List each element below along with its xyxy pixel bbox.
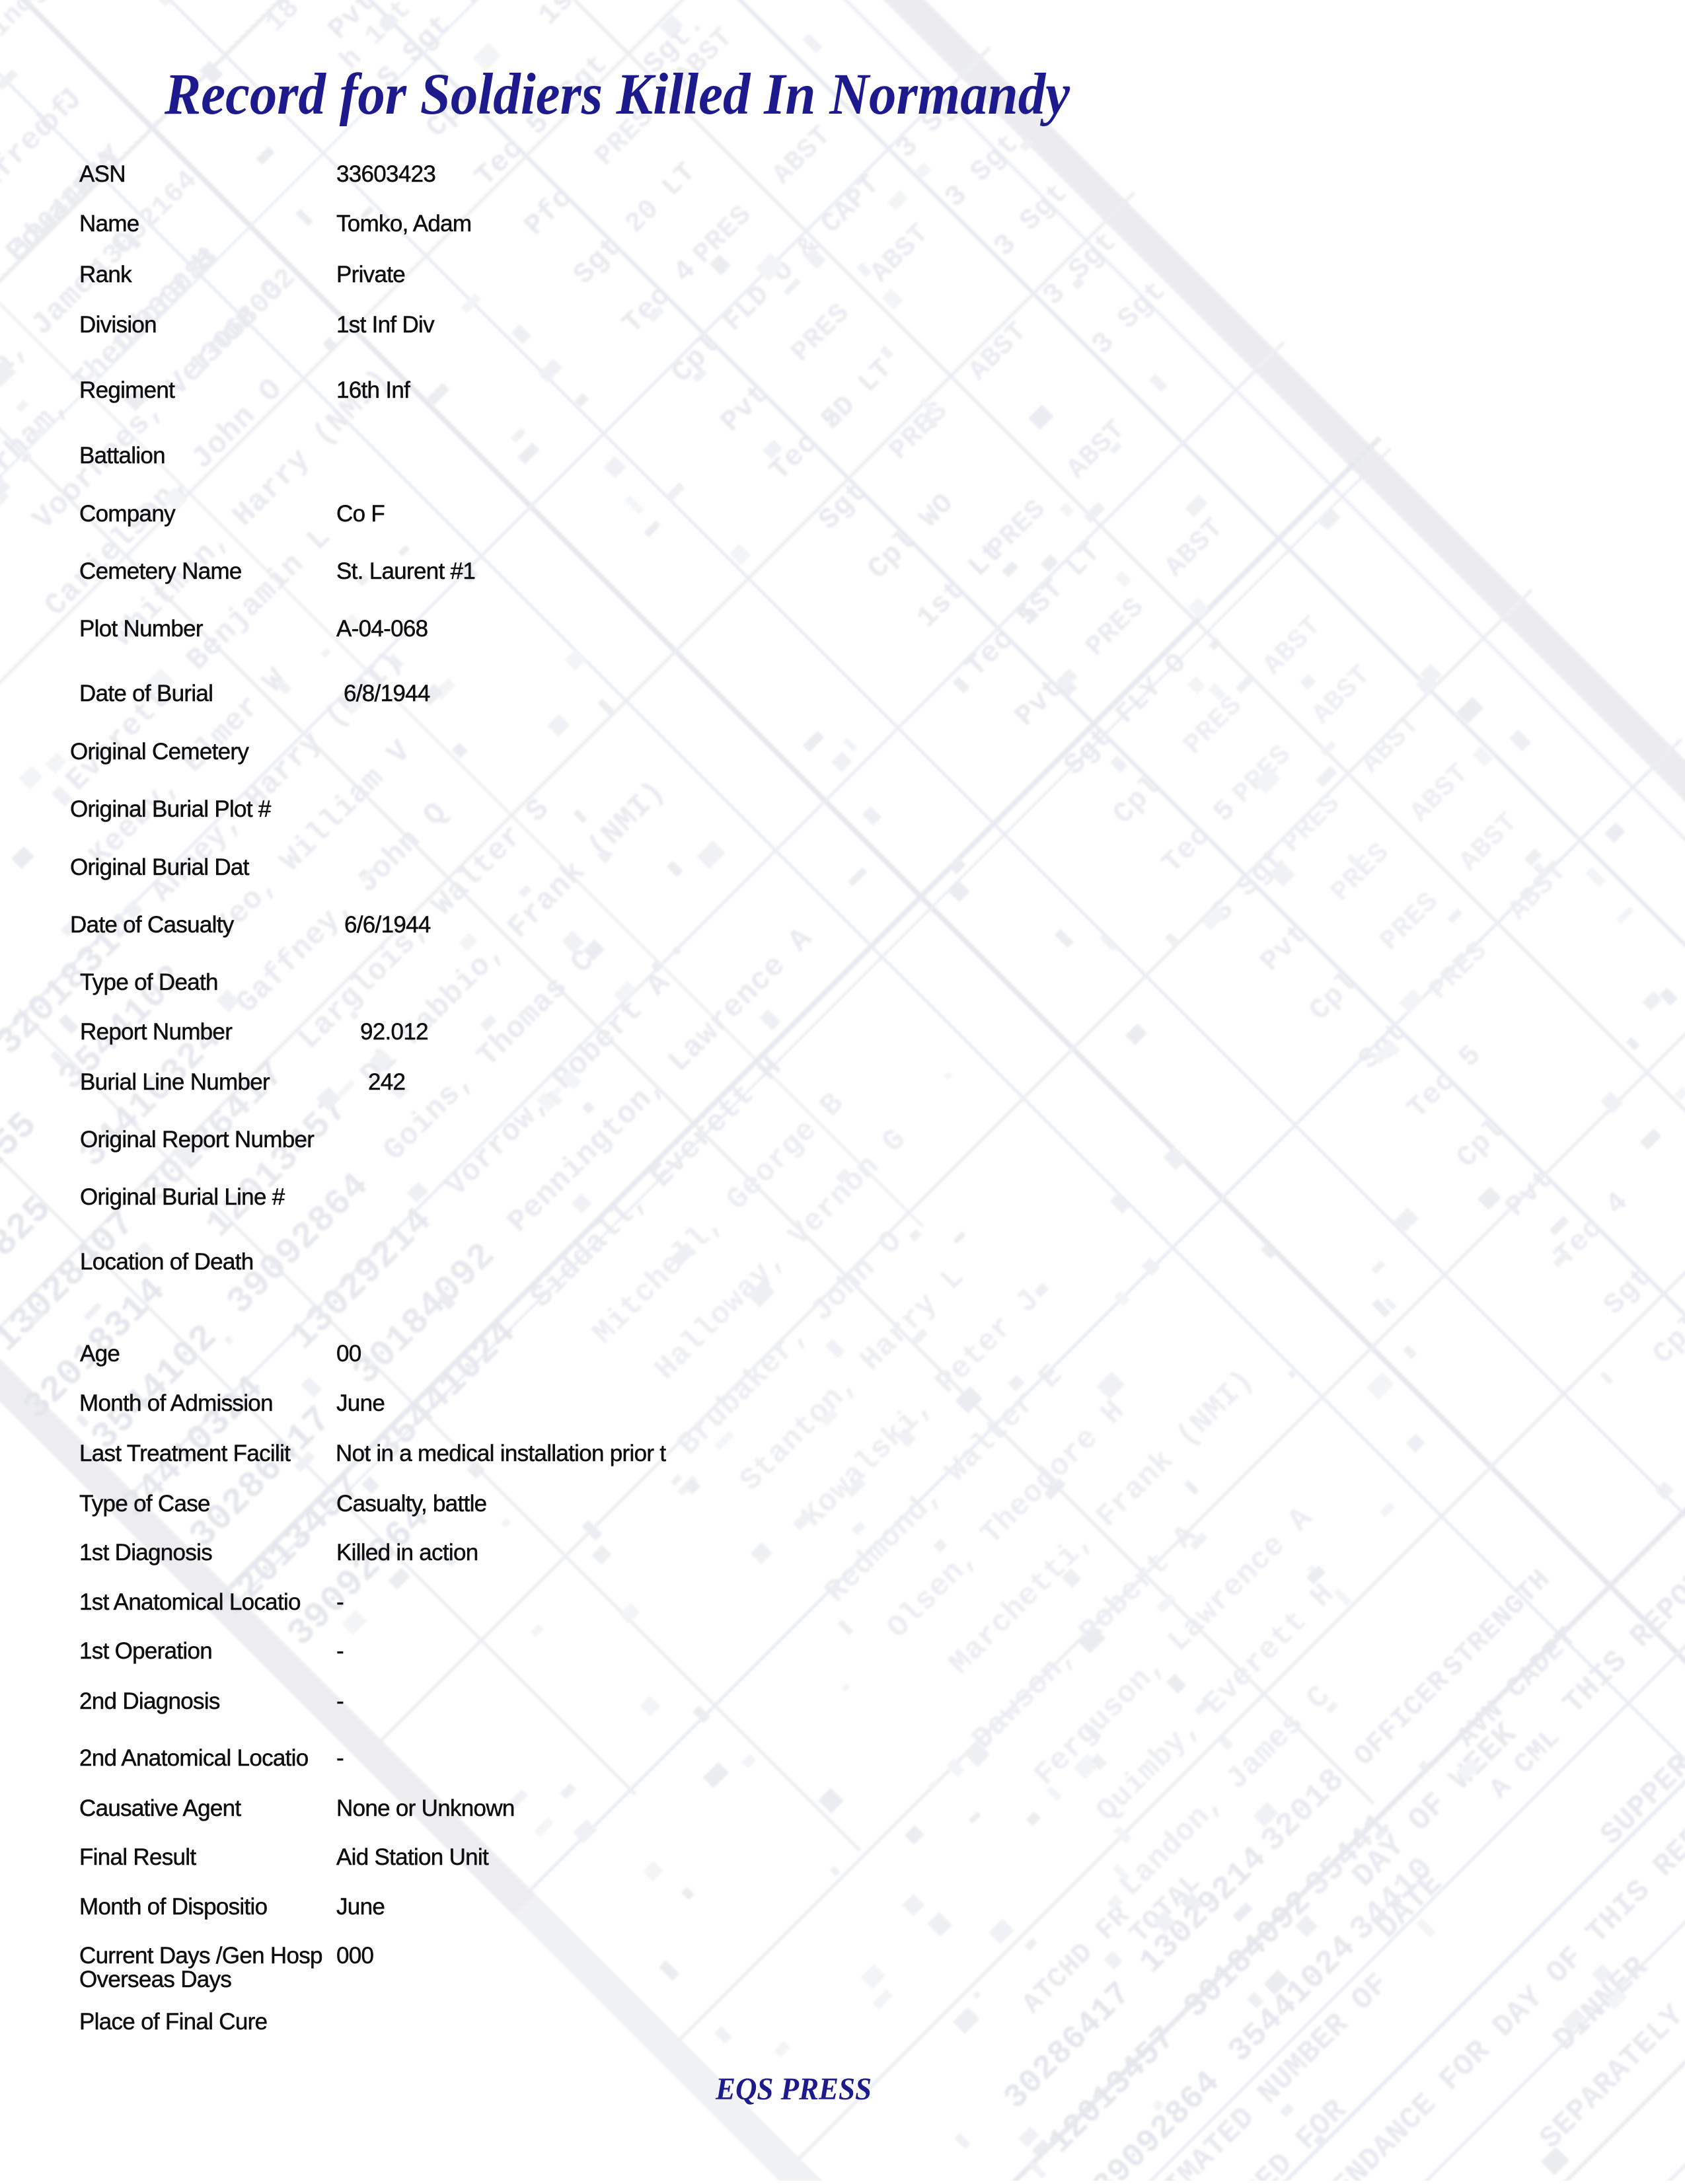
svg-text:Type of Case: Type of Case: [79, 1491, 210, 1517]
svg-text:Co F: Co F: [336, 501, 385, 527]
svg-text:2nd Diagnosis: 2nd Diagnosis: [79, 1688, 220, 1714]
svg-text:16th Inf: 16th Inf: [336, 377, 410, 403]
svg-text:Final Result: Final Result: [79, 1844, 196, 1870]
svg-text:Original Burial Line #: Original Burial Line #: [80, 1184, 285, 1210]
svg-text:Month of Dispositio: Month of Dispositio: [79, 1894, 267, 1920]
svg-text:Location of Death: Location of Death: [80, 1249, 253, 1275]
svg-text:6/6/1944: 6/6/1944: [344, 912, 431, 938]
svg-text:-: -: [336, 1638, 344, 1664]
svg-text:Month of Admission: Month of Admission: [79, 1390, 273, 1416]
svg-text:000: 000: [336, 1943, 374, 1969]
svg-text:Division: Division: [79, 312, 157, 338]
svg-text:Plot Number: Plot Number: [79, 616, 204, 642]
svg-text:-: -: [336, 1589, 344, 1615]
svg-text:2nd Anatomical Locatio: 2nd Anatomical Locatio: [79, 1745, 309, 1771]
svg-text:Causative Agent: Causative Agent: [79, 1795, 241, 1821]
svg-text:1st Anatomical Locatio: 1st Anatomical Locatio: [79, 1589, 301, 1615]
svg-text:00: 00: [336, 1341, 361, 1367]
svg-text:Date of Casualty: Date of Casualty: [70, 912, 235, 938]
svg-text:Age: Age: [80, 1341, 120, 1367]
svg-text:June: June: [336, 1390, 385, 1416]
svg-text:Aid Station Unit: Aid Station Unit: [336, 1844, 489, 1870]
svg-text:Rank: Rank: [79, 262, 132, 287]
svg-text:Original Cemetery: Original Cemetery: [70, 739, 249, 765]
svg-text:1st Diagnosis: 1st Diagnosis: [79, 1540, 212, 1565]
svg-text:Type of Death: Type of Death: [80, 969, 218, 995]
svg-text:EQS PRESS: EQS PRESS: [715, 2072, 872, 2107]
svg-text:Record for Soldiers Killed In: Record for Soldiers Killed In Normandy: [164, 62, 1070, 127]
svg-text:June: June: [336, 1894, 385, 1920]
svg-text:Original Burial Dat: Original Burial Dat: [70, 854, 250, 880]
svg-text:1st Operation: 1st Operation: [79, 1638, 212, 1664]
svg-text:Cemetery Name: Cemetery Name: [79, 558, 242, 584]
svg-text:1st Inf Div: 1st Inf Div: [336, 312, 435, 338]
svg-text:A-04-068: A-04-068: [336, 616, 428, 642]
svg-text:Report Number: Report Number: [80, 1019, 233, 1045]
svg-text:Regiment: Regiment: [79, 377, 175, 403]
svg-text:Overseas Days: Overseas Days: [79, 1967, 231, 1992]
svg-text:6/8/1944: 6/8/1944: [344, 681, 430, 706]
svg-text:Original Report Number: Original Report Number: [80, 1127, 315, 1152]
svg-text:33603423: 33603423: [336, 161, 435, 187]
svg-text:Private: Private: [336, 262, 405, 287]
svg-text:St. Laurent #1: St. Laurent #1: [336, 558, 475, 584]
svg-text:-: -: [336, 1688, 344, 1714]
svg-text:Current Days /Gen Hosp: Current Days /Gen Hosp: [79, 1943, 322, 1969]
svg-text:Battalion: Battalion: [79, 443, 165, 469]
svg-text:Tomko, Adam: Tomko, Adam: [336, 211, 471, 237]
svg-text:Place of Final Cure: Place of Final Cure: [79, 2009, 267, 2035]
svg-text:Name: Name: [79, 211, 139, 237]
svg-text:-: -: [336, 1745, 344, 1771]
svg-text:Not in a medical installation: Not in a medical installation prior t: [336, 1441, 666, 1466]
svg-text:Last Treatment Facilit: Last Treatment Facilit: [79, 1441, 291, 1466]
svg-text:242: 242: [368, 1069, 405, 1095]
svg-text:Killed in action: Killed in action: [336, 1540, 478, 1565]
svg-text:Company: Company: [79, 501, 176, 527]
svg-text:92.012: 92.012: [360, 1019, 428, 1045]
svg-text:Date of Burial: Date of Burial: [79, 681, 213, 706]
svg-text:Burial Line Number: Burial Line Number: [80, 1069, 270, 1095]
svg-text:Casualty, battle: Casualty, battle: [336, 1491, 486, 1517]
svg-text:None or Unknown: None or Unknown: [336, 1795, 515, 1821]
svg-text:ASN: ASN: [79, 161, 126, 187]
svg-text:Original Burial Plot #: Original Burial Plot #: [70, 796, 272, 822]
